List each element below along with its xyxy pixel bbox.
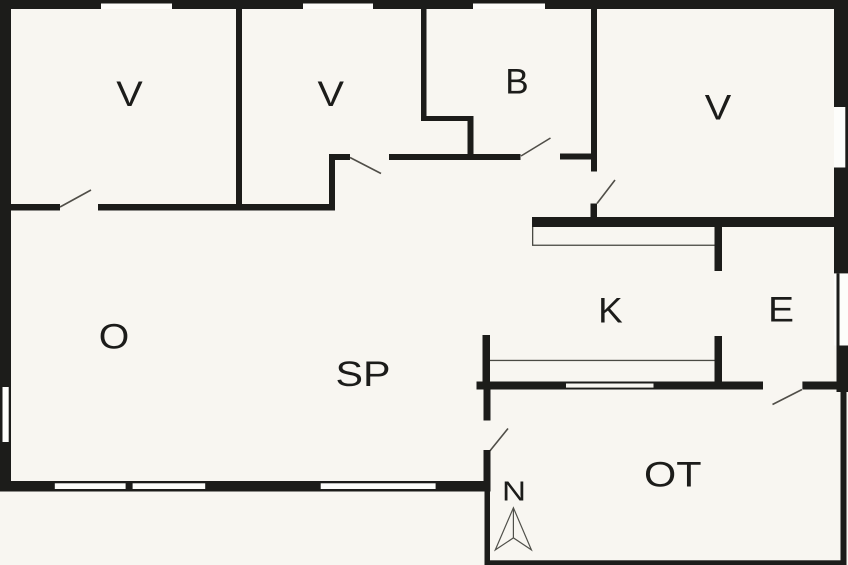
svg-text:E: E — [768, 291, 794, 330]
svg-text:SP: SP — [336, 355, 391, 394]
svg-text:V: V — [318, 75, 345, 114]
svg-text:N: N — [502, 476, 526, 507]
svg-text:B: B — [505, 63, 528, 102]
svg-text:OT: OT — [644, 456, 702, 495]
svg-text:K: K — [598, 292, 623, 331]
svg-text:O: O — [99, 318, 130, 357]
svg-text:V: V — [116, 75, 143, 114]
svg-text:V: V — [705, 89, 732, 128]
